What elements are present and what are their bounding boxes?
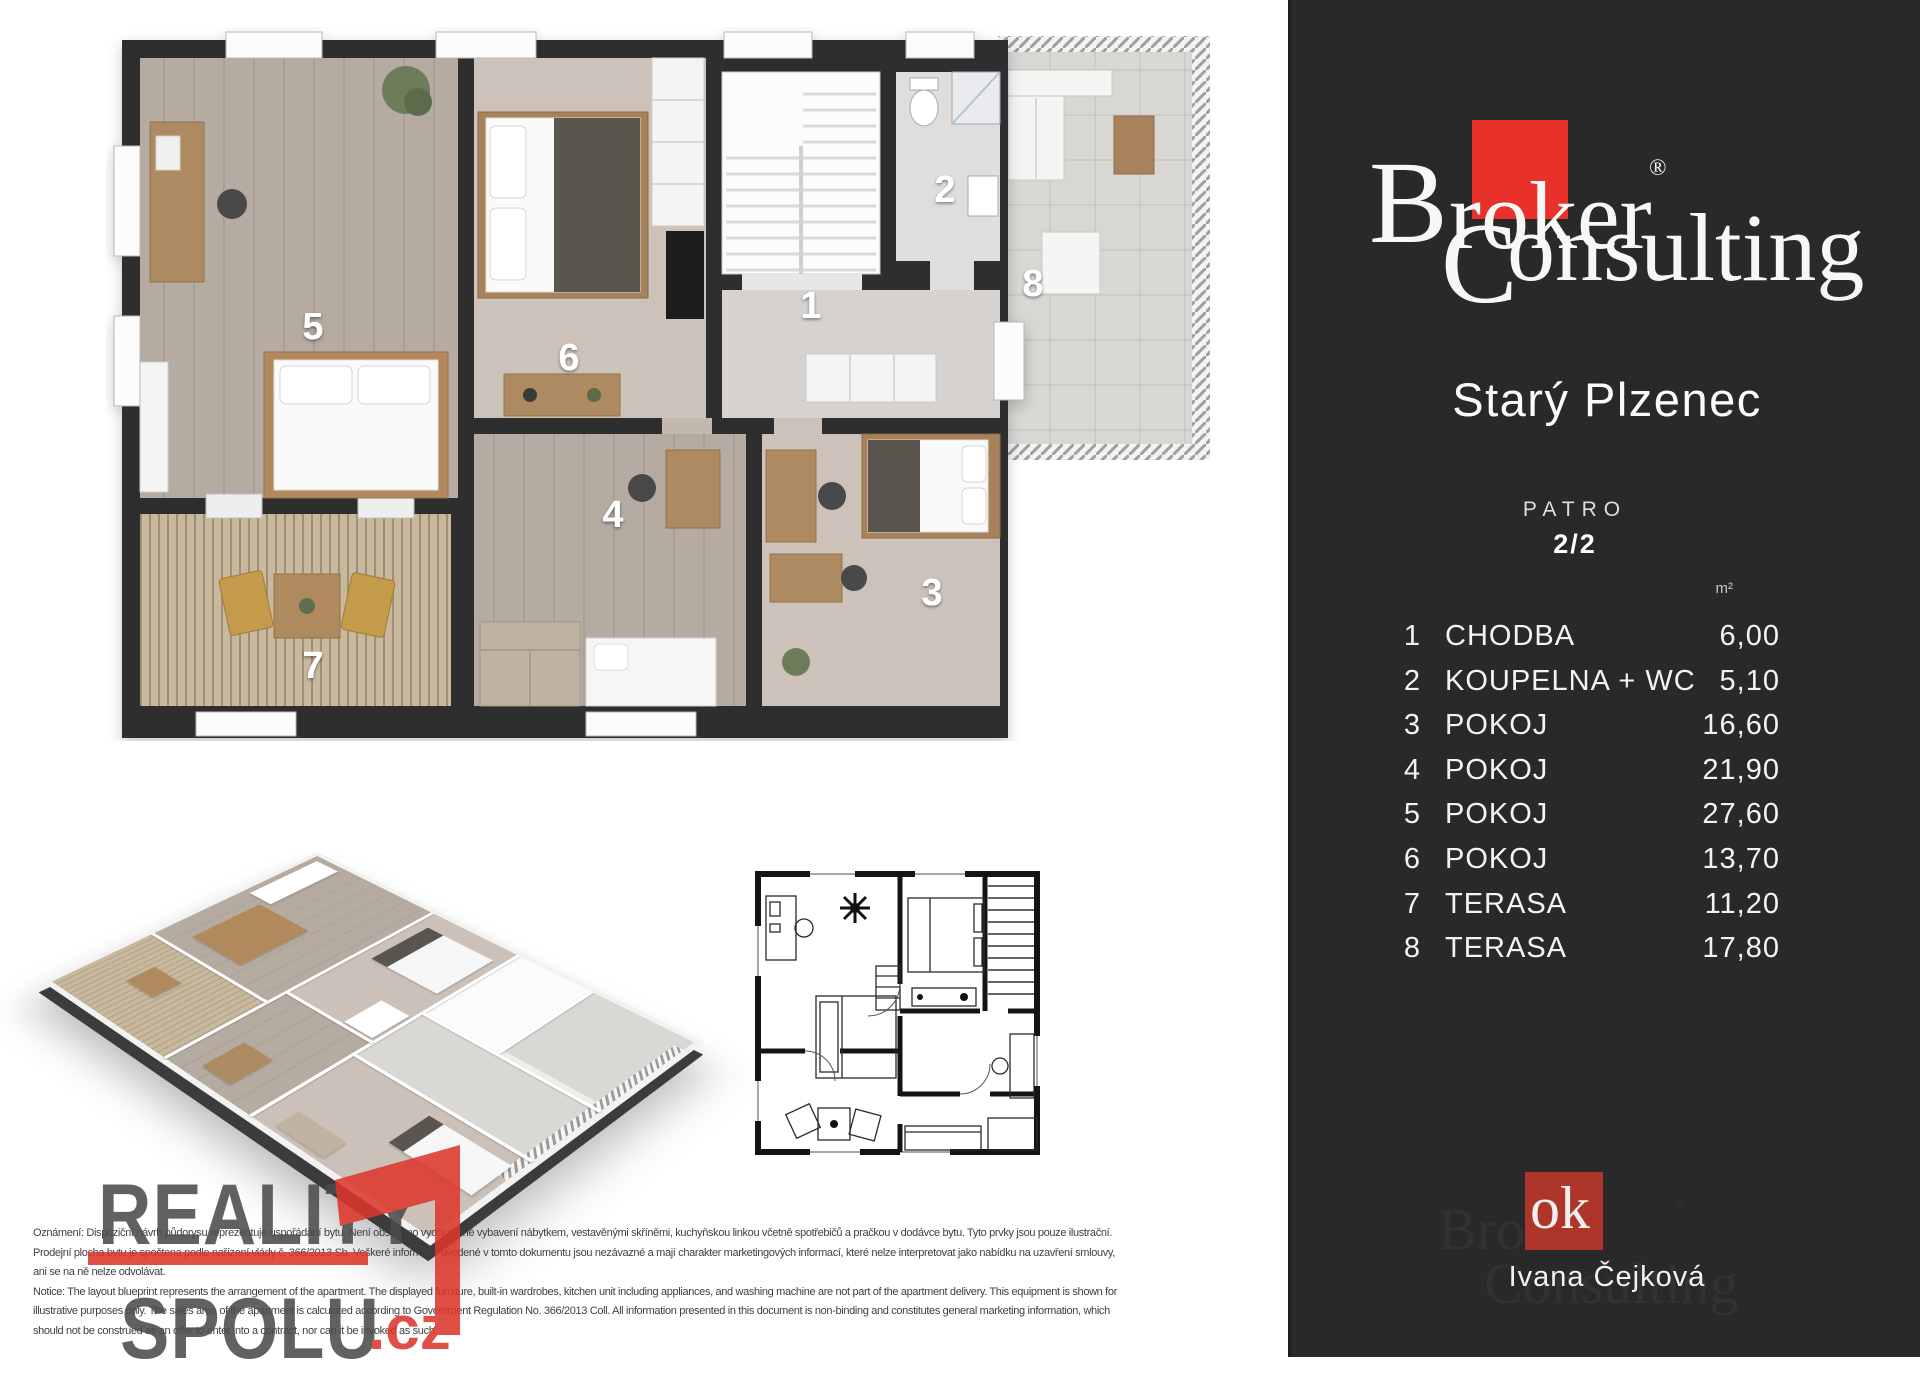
agent-logo-ok: ok [1530,1178,1590,1238]
room-label-7: 7 [302,645,323,687]
plant-icon [782,648,810,676]
room-number: 4 [1387,754,1421,787]
room-area: 27,60 [1702,798,1780,831]
room-name: TERASA [1445,932,1567,965]
room-area: 16,60 [1702,709,1780,742]
room-number: 2 [1387,665,1421,698]
pillow [594,644,628,670]
tv-panel [666,231,704,319]
room-label-6: 6 [558,337,579,379]
broker-consulting-logo: B roker ® C onsulting [1361,110,1891,360]
room-area: 21,90 [1702,754,1780,787]
room-name: POKOJ [1445,709,1548,742]
room-row: 1 CHODBA 6,00 [1387,620,1780,665]
room-name: KOUPELNA + WC [1445,665,1696,698]
area-unit-header: m² [1716,580,1734,597]
office-chair [217,189,247,219]
room-number: 7 [1387,888,1421,921]
hall-cabinets [806,354,936,402]
room-number: 1 [1387,620,1421,653]
room-list: 1 CHODBA 6,00 2 KOUPELNA + WC 5,10 3 POK… [1387,620,1780,977]
pillow [490,126,526,198]
washbasin [968,176,998,216]
pillow [280,366,352,404]
room-area: 17,80 [1702,932,1780,965]
terrace-7-furniture [218,570,395,638]
watermark-corner-icon [320,1140,480,1350]
desk-plant-icon [523,388,537,402]
ghost-registered-icon: ® [1674,1197,1685,1213]
office-chair [818,482,846,510]
pillow [358,366,430,404]
floorplan-blueprint [750,866,1045,1160]
room-label-4: 4 [602,494,623,536]
room-label-5: 5 [302,306,323,348]
room-number: 3 [1387,709,1421,742]
room-label-2: 2 [934,169,955,211]
table-plant-icon [299,598,315,614]
info-panel: B roker ® C onsulting Starý Plzenec PATR… [1288,0,1920,1357]
room-label-1: 1 [800,285,821,327]
room-area: 11,20 [1705,888,1780,921]
blanket [868,440,920,532]
toilet [910,90,938,126]
floor-label: PATRO [1259,498,1891,522]
floor-value: 2/2 [1259,529,1891,560]
room-name: POKOJ [1445,843,1548,876]
page-title: Starý Plzenec [1291,372,1920,427]
side-table [1114,116,1154,174]
room-row: 8 TERASA 17,80 [1387,932,1780,977]
armchair [1042,232,1100,294]
office-chair [841,565,867,591]
desk [770,554,842,602]
office-chair [628,474,656,502]
room-number: 6 [1387,843,1421,876]
room-area: 6,00 [1720,620,1780,653]
logo-letter-b: B [1369,144,1448,262]
room-name: POKOJ [1445,754,1548,787]
desk [766,450,816,542]
pillow [490,208,526,280]
desk [666,450,720,528]
room-name: TERASA [1445,888,1567,921]
blanket [554,118,640,292]
room-row: 7 TERASA 11,20 [1387,888,1780,933]
pillow [962,446,986,482]
room-number: 5 [1387,798,1421,831]
room-number: 8 [1387,932,1421,965]
floor-block: PATRO 2/2 [1259,498,1891,560]
room-row: 6 POKOJ 13,70 [1387,843,1780,888]
watermark-realityspolu: REALITY SPOLU .cz [80,1140,500,1360]
room-area: 5,10 [1720,665,1780,698]
building [114,32,1024,738]
room-row: 3 POKOJ 16,60 [1387,709,1780,754]
room-label-3: 3 [921,572,942,614]
wardrobe [140,362,168,492]
room-name: CHODBA [1445,620,1575,653]
room-row: 4 POKOJ 21,90 [1387,754,1780,799]
room-name: POKOJ [1445,798,1548,831]
desk [504,374,620,416]
desk-plant-icon [587,388,601,402]
agent-block: Broker Consulting ® ok Ivana Čejková [1372,1185,1842,1357]
room-label-8: 8 [1022,263,1043,305]
terrace-door [994,322,1024,400]
terrace-8 [998,36,1210,460]
floorplan-topdown-svg: 1 2 3 4 5 6 7 8 [106,26,1221,741]
agent-name: Ivana Čejková [1372,1261,1842,1294]
room-row: 2 KOUPELNA + WC 5,10 [1387,665,1780,710]
floorplan-topdown: 1 2 3 4 5 6 7 8 [106,26,1221,741]
registered-icon: ® [1649,156,1666,179]
room-area: 13,70 [1702,843,1780,876]
room-row: 5 POKOJ 27,60 [1387,798,1780,843]
pillow [962,488,986,524]
floorplan-blueprint-svg [750,866,1045,1160]
logo-word-onsulting: onsulting [1507,200,1864,296]
